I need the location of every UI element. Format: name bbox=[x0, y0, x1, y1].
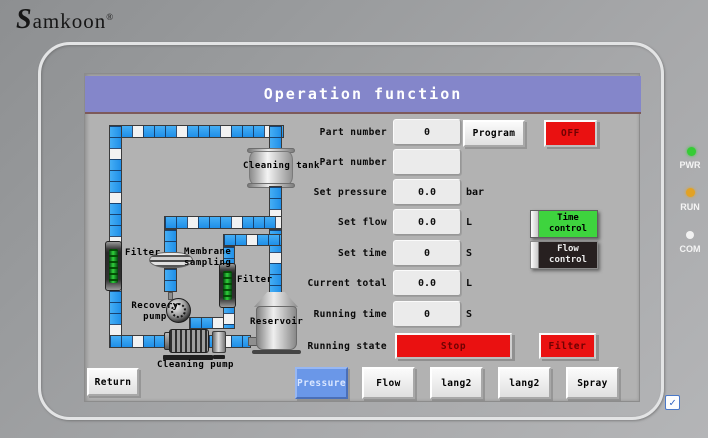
field-set-flow[interactable]: 0.0 bbox=[393, 209, 461, 235]
hmi-device: Samkoon® Operation function bbox=[0, 0, 708, 438]
filter-left-label: Filter bbox=[125, 248, 161, 259]
run-led-icon bbox=[686, 188, 695, 197]
cleaning-pump-label: Cleaning pump bbox=[157, 360, 234, 371]
unit-current-total: L bbox=[466, 278, 472, 289]
title-bar: Operation function bbox=[85, 76, 641, 114]
time-control-button[interactable]: Time control bbox=[530, 210, 598, 238]
label-set-pressure: Set pressure bbox=[265, 187, 387, 198]
pipe-top bbox=[109, 125, 284, 138]
spray-tab[interactable]: Spray bbox=[566, 367, 619, 399]
pipe-sub-horizontal bbox=[223, 234, 282, 246]
flow-control-button[interactable]: Flow control bbox=[530, 241, 598, 269]
filter-right-window bbox=[223, 271, 232, 300]
unit-running-time: S bbox=[466, 309, 472, 320]
running-state-button[interactable]: Stop bbox=[395, 333, 512, 359]
label-part-number-1: Part number bbox=[265, 127, 387, 138]
pwr-led-label: PWR bbox=[672, 160, 708, 170]
pipe-membrane-down bbox=[164, 268, 177, 292]
label-set-time: Set time bbox=[265, 248, 387, 259]
label-part-number-2: Part number bbox=[265, 157, 387, 168]
run-led-label: RUN bbox=[672, 202, 708, 212]
flow-tab[interactable]: Flow bbox=[362, 367, 415, 399]
brand-logo-text: amkoon bbox=[33, 9, 107, 33]
com-led-label: COM bbox=[672, 244, 708, 254]
membrane-label-line1: Membrane bbox=[184, 247, 231, 257]
unit-set-time: S bbox=[466, 248, 472, 259]
cleaning-pump-unit bbox=[169, 329, 209, 353]
power-toggle-button[interactable]: OFF bbox=[544, 120, 597, 147]
recovery-label-line2: pump bbox=[143, 312, 167, 322]
unit-set-pressure: bar bbox=[466, 187, 484, 198]
registered-mark: ® bbox=[106, 12, 114, 22]
filter-right-unit bbox=[219, 263, 236, 308]
field-part-number-2[interactable] bbox=[393, 149, 461, 175]
cleaning-pump-head bbox=[212, 331, 226, 353]
brand-logo-initial: S bbox=[16, 4, 33, 35]
unit-set-flow: L bbox=[466, 217, 472, 228]
label-current-total: Current total bbox=[265, 278, 387, 289]
recovery-label-line1: Recovery bbox=[131, 301, 178, 311]
pipe-pump-out bbox=[189, 317, 224, 329]
field-part-number-1[interactable]: 0 bbox=[393, 119, 461, 145]
pipe-membrane-branch bbox=[164, 229, 177, 253]
cleaning-pump-head-base bbox=[213, 355, 225, 359]
label-running-time: Running time bbox=[265, 309, 387, 320]
label-running-state: Running state bbox=[265, 341, 387, 352]
field-running-time[interactable]: 0 bbox=[393, 301, 461, 327]
pressure-tab[interactable]: Pressure bbox=[295, 367, 348, 399]
edit-check-icon[interactable]: ✓ bbox=[665, 395, 680, 410]
page-title: Operation function bbox=[264, 85, 463, 103]
reservoir-funnel bbox=[254, 292, 298, 307]
filter-left-window bbox=[109, 249, 118, 283]
field-set-time[interactable]: 0 bbox=[393, 240, 461, 266]
field-set-pressure[interactable]: 0.0 bbox=[393, 179, 461, 205]
label-set-flow: Set flow bbox=[265, 217, 387, 228]
filter-mode-button[interactable]: Filter bbox=[539, 333, 596, 359]
lang2-tab-2[interactable]: lang2 bbox=[498, 367, 551, 399]
membrane-label-line2: sampling bbox=[184, 258, 231, 268]
com-led-icon bbox=[686, 231, 694, 239]
program-button[interactable]: Program bbox=[463, 120, 525, 147]
recovery-pump-label: Recoverypump bbox=[127, 301, 183, 323]
brand-logo: Samkoon® bbox=[16, 4, 114, 36]
return-button[interactable]: Return bbox=[87, 368, 139, 396]
lang2-tab-1[interactable]: lang2 bbox=[430, 367, 483, 399]
field-current-total[interactable]: 0.0 bbox=[393, 270, 461, 296]
pwr-led-icon bbox=[687, 147, 696, 156]
membrane-label: Membranesampling bbox=[184, 247, 231, 269]
filter-left-unit bbox=[105, 241, 122, 291]
touchscreen: Operation function Cleaning tank bbox=[84, 73, 640, 402]
pipe-left bbox=[109, 125, 122, 348]
